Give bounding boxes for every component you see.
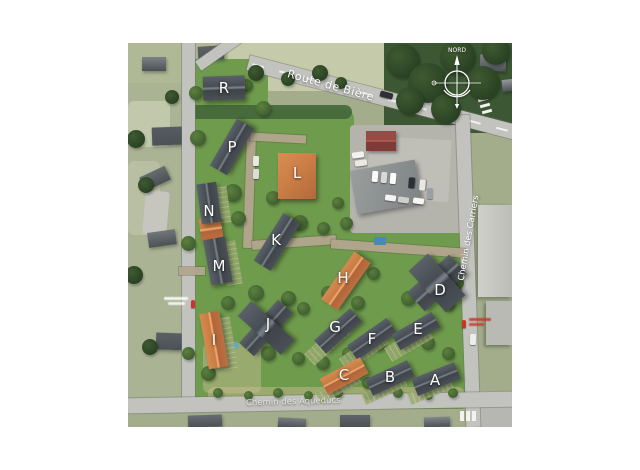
neighbor-building-east — [478, 205, 512, 297]
tree — [189, 86, 203, 100]
car — [381, 171, 388, 182]
tree — [396, 87, 424, 115]
tree — [165, 90, 179, 104]
building-label-c: C — [339, 366, 349, 384]
neighbor-house-roof — [424, 417, 450, 427]
tree — [442, 347, 455, 360]
building-label-m: M — [213, 257, 226, 275]
building-label-a: A — [430, 371, 440, 389]
neighbor-house-roof — [142, 57, 166, 71]
car — [470, 333, 476, 344]
pin-annotation-right — [469, 318, 491, 321]
tree — [221, 296, 235, 310]
neighbor-house-roof — [188, 414, 222, 427]
car — [372, 170, 379, 181]
pin-annotation-right — [469, 323, 484, 326]
zebra-dash — [466, 411, 470, 421]
car — [427, 188, 433, 199]
tree — [190, 130, 206, 146]
building-label-p: P — [227, 138, 236, 156]
compass-rose: NORD — [427, 43, 487, 123]
pin-annotation-left — [164, 297, 188, 300]
building-label-e: E — [413, 320, 422, 338]
tree — [142, 339, 158, 355]
neighbor-house-roof — [340, 415, 370, 427]
tree — [256, 101, 271, 116]
car — [419, 179, 426, 190]
tree — [297, 302, 310, 315]
building-label-k: K — [271, 231, 281, 249]
tree — [231, 211, 246, 226]
neighbor-house-roof — [278, 417, 306, 427]
tree — [332, 197, 344, 209]
red-map-pin-left — [191, 300, 195, 308]
tree — [351, 296, 365, 310]
blue-tarp — [374, 237, 386, 245]
aerial-map: Route de Bière Chemin des Carriers Chemi… — [128, 43, 512, 427]
building-label-h: H — [337, 269, 348, 287]
internal-lane-stub — [179, 267, 205, 275]
page-canvas: Route de Bière Chemin des Carriers Chemi… — [0, 0, 640, 470]
tree — [138, 177, 154, 193]
red-map-pin-right — [462, 320, 466, 328]
zebra-dash — [472, 411, 476, 421]
building-label-d: D — [434, 281, 446, 299]
neighbor-house-roof — [501, 78, 512, 92]
tree — [292, 352, 305, 365]
tree — [248, 285, 264, 301]
building-label-g: G — [329, 318, 341, 336]
tree — [213, 388, 223, 398]
car — [408, 177, 415, 188]
building-label-l: L — [293, 164, 301, 182]
tree — [182, 347, 195, 360]
compass-north-label: NORD — [448, 47, 466, 54]
tree — [181, 236, 196, 251]
building-label-f: F — [368, 330, 377, 348]
pin-annotation-left — [168, 302, 185, 305]
building-label-b: B — [385, 368, 395, 386]
tree — [340, 217, 353, 230]
building-label-n: N — [203, 202, 214, 220]
tree — [248, 65, 264, 81]
building-label-i: I — [212, 331, 216, 349]
tree — [367, 267, 380, 280]
zebra-dash — [460, 411, 464, 421]
red-roof-shed — [366, 131, 396, 151]
building-label-r: R — [219, 79, 229, 97]
terrain-left-paving — [142, 190, 170, 236]
tree — [317, 222, 330, 235]
car — [390, 172, 397, 183]
car — [253, 169, 259, 179]
car — [253, 156, 259, 166]
neighbor-building-east2 — [486, 301, 512, 345]
building-label-j: J — [266, 315, 270, 333]
